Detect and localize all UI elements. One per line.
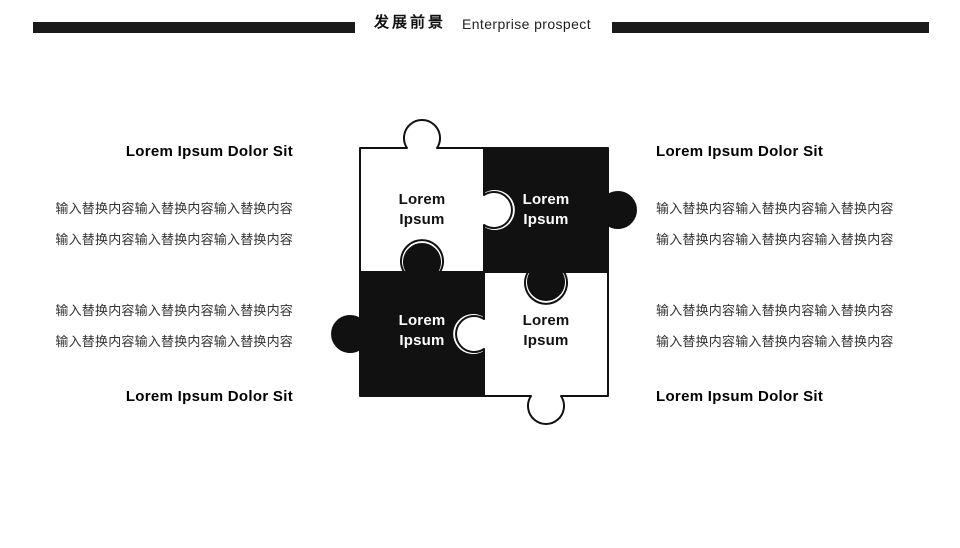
section-body-line: 输入替换内容输入替换内容输入替换内容 [656,193,909,224]
puzzle-svg [330,100,650,430]
section-heading: Lorem Ipsum Dolor Sit [40,141,293,163]
section-body: 输入替换内容输入替换内容输入替换内容 输入替换内容输入替换内容输入替换内容 [40,295,293,357]
puzzle-diagram [330,100,650,430]
puzzle-piece-label-top-left: Lorem Ipsum [372,190,472,230]
puzzle-piece-label-bottom-right: Lorem Ipsum [496,311,596,351]
section-body-line: 输入替换内容输入替换内容输入替换内容 [656,295,909,326]
piece-label-line2: Ipsum [372,331,472,351]
piece-label-line1: Lorem [372,190,472,210]
section-body-line: 输入替换内容输入替换内容输入替换内容 [656,224,909,255]
section-bottom-right: 输入替换内容输入替换内容输入替换内容 输入替换内容输入替换内容输入替换内容 Lo… [656,295,909,408]
piece-label-line2: Ipsum [496,331,596,351]
puzzle-piece-label-top-right: Lorem Ipsum [496,190,596,230]
section-body: 输入替换内容输入替换内容输入替换内容 输入替换内容输入替换内容输入替换内容 [656,295,909,357]
section-body: 输入替换内容输入替换内容输入替换内容 输入替换内容输入替换内容输入替换内容 [656,193,909,255]
section-body-line: 输入替换内容输入替换内容输入替换内容 [40,224,293,255]
piece-label-line1: Lorem [372,311,472,331]
piece-label-line1: Lorem [496,190,596,210]
section-body-line: 输入替换内容输入替换内容输入替换内容 [40,326,293,357]
puzzle-piece-label-bottom-left: Lorem Ipsum [372,311,472,351]
section-bottom-left: 输入替换内容输入替换内容输入替换内容 输入替换内容输入替换内容输入替换内容 Lo… [40,295,293,408]
header-left-bar [33,22,355,33]
section-body: 输入替换内容输入替换内容输入替换内容 输入替换内容输入替换内容输入替换内容 [40,193,293,255]
section-body-line: 输入替换内容输入替换内容输入替换内容 [656,326,909,357]
section-top-right: Lorem Ipsum Dolor Sit 输入替换内容输入替换内容输入替换内容… [656,141,909,255]
section-heading: Lorem Ipsum Dolor Sit [656,386,909,408]
header-right-bar [612,22,929,33]
slide-title-en: Enterprise prospect [462,16,591,32]
piece-label-line2: Ipsum [496,210,596,230]
slide-title-zh: 发展前景 [374,14,446,32]
piece-label-line2: Ipsum [372,210,472,230]
piece-label-line1: Lorem [496,311,596,331]
section-heading: Lorem Ipsum Dolor Sit [40,386,293,408]
section-body-line: 输入替换内容输入替换内容输入替换内容 [40,193,293,224]
slide: 发展前景 Enterprise prospect Lorem Ipsum Lor… [0,0,960,548]
section-top-left: Lorem Ipsum Dolor Sit 输入替换内容输入替换内容输入替换内容… [40,141,293,255]
section-body-line: 输入替换内容输入替换内容输入替换内容 [40,295,293,326]
section-heading: Lorem Ipsum Dolor Sit [656,141,909,163]
